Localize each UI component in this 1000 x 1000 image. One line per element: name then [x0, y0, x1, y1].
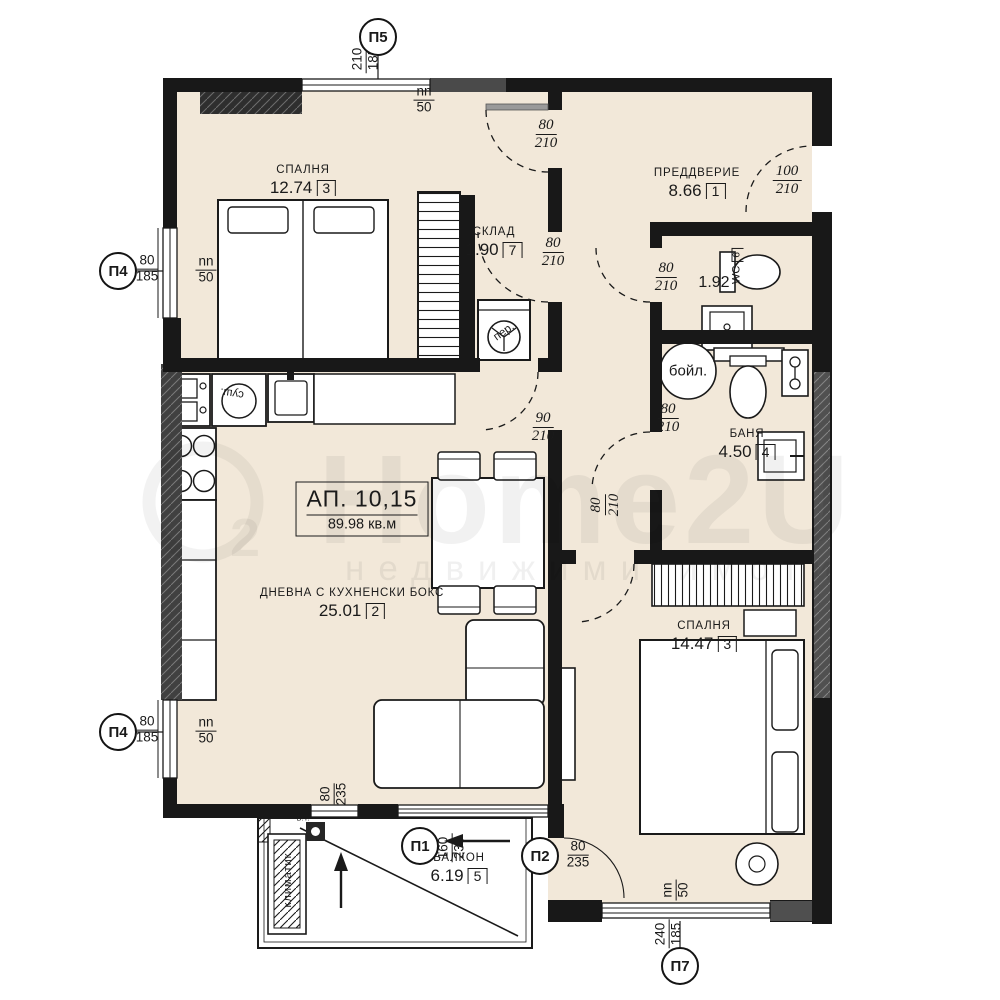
dim-p1: 160235 [437, 834, 468, 863]
dim-window-bottom: nn50 [661, 879, 692, 900]
dim-window-french: 80235 [319, 783, 350, 806]
marker-p1: П1 [401, 827, 439, 865]
apartment-area: 89.98 кв.м [307, 515, 418, 533]
dim-door-entrance: 100210 [773, 163, 802, 197]
chair [438, 586, 480, 614]
dim-p4-lower: 80185 [136, 715, 159, 746]
dim-window-left2: nn50 [195, 716, 216, 747]
watermark-tagline: недвижими имоти [345, 549, 846, 588]
dim-door-storage: 80210 [542, 235, 565, 269]
sofa-chaise [466, 620, 544, 706]
marker-p2: П2 [521, 837, 559, 875]
counter [314, 374, 455, 424]
pillow [314, 207, 374, 233]
sofa [374, 700, 544, 788]
tv-unit [560, 668, 575, 780]
vt-label: В.Т. [297, 814, 310, 823]
room-label-entry: ПРЕДДВЕРИЕ 8.661 [654, 167, 740, 201]
floor-plan-page: 2 Home2U недвижими имоти СПАЛНЯ 12.743 П… [0, 0, 1000, 1000]
room-label-wc: WC6 [731, 248, 744, 284]
dim-door-bedroom1: 80210 [535, 117, 558, 151]
room-area-wc: 1.92 [698, 274, 729, 292]
dim-door-wc: 80210 [655, 260, 678, 294]
chair [494, 586, 536, 614]
dim-door-bath: 80210 [657, 401, 680, 435]
balcony-structure [258, 818, 532, 948]
ac-label: климатик [282, 853, 294, 908]
boiler-label: бойл. [669, 363, 707, 380]
pillow [772, 752, 798, 832]
floor-plan-drawing: 2 Home2U недвижими имоти [0, 0, 1000, 1000]
room-label-bath: БАНЯ 4.504 [719, 428, 776, 462]
dim-p2: 80235 [567, 840, 590, 871]
toilet [730, 366, 766, 418]
round-table [736, 843, 778, 885]
watermark-logo-sub: 2 [230, 508, 260, 568]
apartment-title-box: АП. 10,15 89.98 кв.м [296, 482, 429, 537]
dim-door-living: 90210 [532, 410, 555, 444]
room-label-bedroom1: СПАЛНЯ 12.743 [270, 164, 336, 198]
pillow [228, 207, 288, 233]
room-label-bedroom2: СПАЛНЯ 14.473 [671, 620, 737, 654]
dim-p4-upper: 80185 [136, 254, 159, 285]
apartment-number: АП. 10,15 [307, 486, 418, 513]
marker-p7: П7 [661, 947, 699, 985]
dim-window-left1: nn50 [195, 255, 216, 286]
marker-p4-upper: П4 [99, 252, 137, 290]
side-table [744, 610, 796, 636]
room-label-storage: СКЛАД 1.907 [466, 226, 523, 260]
pillow [772, 650, 798, 730]
dim-door-bedroom2: 80210 [588, 494, 622, 517]
marker-p5: П5 [359, 18, 397, 56]
dim-p7: 240185 [654, 920, 685, 949]
marker-p4-lower: П4 [99, 713, 137, 751]
dim-window-top: nn50 [413, 85, 434, 116]
room-label-living: ДНЕВНА С КУХНЕНСКИ БОКС 25.012 [260, 587, 444, 621]
